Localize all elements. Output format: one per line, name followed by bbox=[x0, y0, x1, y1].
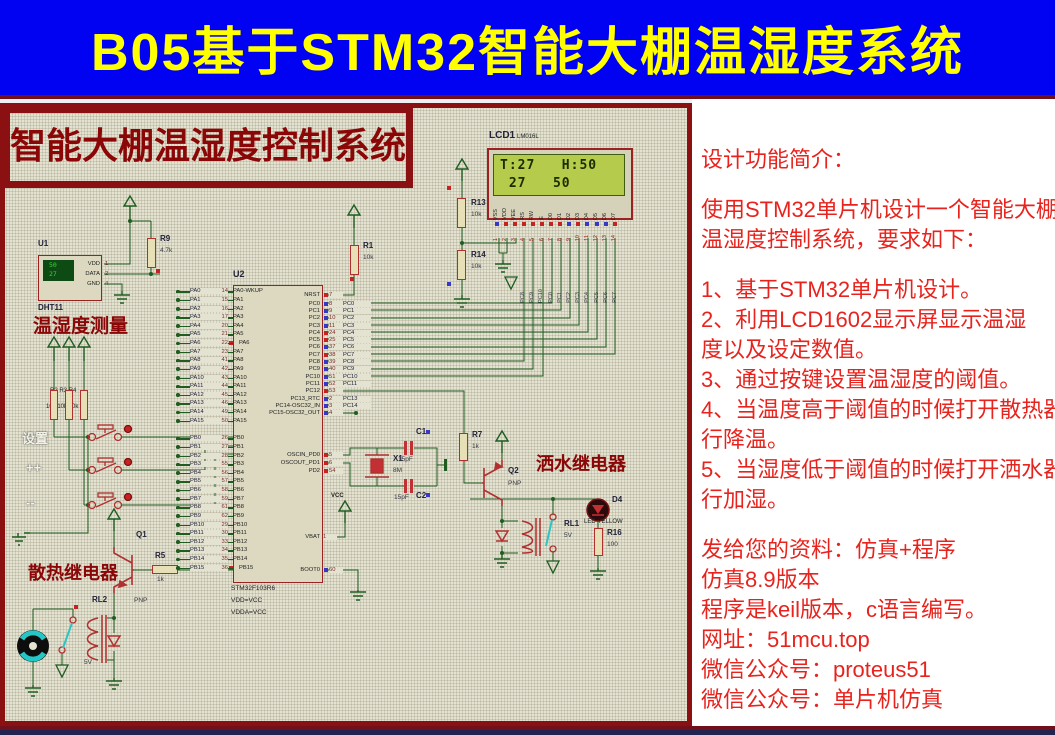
wire-spray-cluster bbox=[326, 391, 598, 568]
r7-ref: R7 bbox=[472, 430, 482, 439]
pin-row: PB1435PB14 bbox=[176, 555, 296, 564]
pin-row: PB127PB1 bbox=[176, 443, 296, 452]
flyback-diode-rl1[interactable] bbox=[496, 531, 508, 541]
pin-row: PB1334PB13 bbox=[176, 546, 296, 555]
q1-ref: Q1 bbox=[136, 530, 147, 539]
resistor-r1[interactable] bbox=[350, 245, 359, 275]
lcd-ref: LCD1 bbox=[489, 130, 515, 141]
u2-ref: U2 bbox=[233, 269, 245, 279]
pin-row: PB962PB9 bbox=[176, 512, 296, 521]
banner: B05基于STM32智能大棚温湿度系统 bbox=[0, 0, 1055, 95]
info-line: 微信公众号：单片机仿真 bbox=[701, 685, 1051, 715]
relay-switch-rl1[interactable] bbox=[546, 514, 556, 552]
q1-type: PNP bbox=[134, 597, 147, 604]
mcu-nrst-pin: NRST7 bbox=[240, 291, 372, 299]
r13-val: 10k bbox=[471, 211, 481, 218]
r1-val: 10k bbox=[363, 254, 373, 261]
schematic-title: 智能大棚温湿度控制系统 bbox=[10, 113, 406, 179]
r9-ref: R9 bbox=[160, 234, 170, 243]
d4-part: LED-YELLOW bbox=[584, 519, 623, 525]
section-measure: 温湿度测量 bbox=[33, 311, 128, 338]
info-line: 仿真8.9版本 bbox=[701, 565, 1051, 595]
pin-row: PB557PB5 bbox=[176, 477, 296, 486]
mcu-osc-pins: OSCIN_PD05OSCOUT_PD16PD254 bbox=[240, 451, 372, 475]
pin-row: PB026PB0 bbox=[176, 434, 296, 443]
resistor-r3[interactable] bbox=[65, 390, 73, 420]
r7-val: 1k bbox=[472, 443, 479, 450]
pin-row: OSCOUT_PD16 bbox=[240, 459, 372, 467]
led-yellow-icon[interactable] bbox=[587, 499, 609, 521]
u2-note-1: VDD=VCC bbox=[231, 597, 262, 604]
u2-note-2: VDDA=VCC bbox=[231, 609, 267, 616]
pin-row: OSCIN_PD05 bbox=[240, 451, 372, 459]
minus-button[interactable] bbox=[89, 493, 132, 509]
info-line: 度以及设定数值。 bbox=[701, 335, 1051, 365]
relay-switch-rl2[interactable] bbox=[59, 617, 76, 653]
section-heat-relay: 散热继电器 bbox=[28, 559, 118, 585]
dht11-pin-numbers: 124 bbox=[105, 259, 117, 289]
schematic-canvas: 智能大棚温湿度控制系统 U1 5027 VDDDATAGND 124 DHT11… bbox=[0, 103, 692, 726]
lcd-part: LM016L bbox=[517, 134, 539, 140]
motor-icon[interactable] bbox=[17, 630, 49, 662]
pin-row: PC1051PC10 bbox=[240, 373, 372, 380]
pin-row: PB658PB6 bbox=[176, 486, 296, 495]
r16-ref: R16 bbox=[607, 528, 622, 537]
r5-val: 1k bbox=[157, 576, 164, 583]
q2-ref: Q2 bbox=[508, 466, 519, 475]
pin-row: PC08PC0 bbox=[240, 300, 372, 307]
pin-row: PA1550PA15 bbox=[176, 416, 296, 425]
c1-val: 15pF bbox=[398, 456, 413, 463]
plus-button[interactable] bbox=[89, 458, 132, 474]
info-line: 发给您的资料：仿真+程序 bbox=[701, 535, 1051, 565]
info-line bbox=[701, 175, 1051, 195]
c2-val: 15pF bbox=[394, 494, 409, 501]
info-line: 2、利用LCD1602显示屏显示温湿 bbox=[701, 305, 1051, 335]
pin-row: PC15-OSC32_OUT4 bbox=[240, 409, 372, 416]
rl1-val: 5V bbox=[564, 532, 572, 539]
flyback-diode-rl2[interactable] bbox=[108, 636, 120, 646]
pin-row: PC1253 bbox=[240, 388, 372, 395]
x1-val: 8M bbox=[393, 467, 402, 474]
info-line: 行加湿。 bbox=[701, 485, 1051, 515]
rl2-ref: RL2 bbox=[92, 595, 107, 604]
pin-row: PC738PC7 bbox=[240, 351, 372, 358]
info-line bbox=[701, 515, 1051, 535]
vcc-label: VCC bbox=[331, 493, 344, 499]
lcd-pin-names: VSSVDDVEERSRWED0D1D2D3D4D5D6D7 bbox=[492, 193, 620, 220]
c1-ref: C1 bbox=[416, 427, 426, 436]
resistor-r14[interactable] bbox=[457, 250, 466, 280]
set-button[interactable] bbox=[89, 425, 132, 441]
info-line: 1、基于STM32单片机设计。 bbox=[701, 275, 1051, 305]
key-set-label: 设置 bbox=[22, 428, 48, 447]
pin-row: PB861PB8 bbox=[176, 503, 296, 512]
schematic-title-box: 智能大棚温湿度控制系统 bbox=[3, 106, 413, 188]
dht11-pin-names: VDDDATAGND bbox=[62, 259, 100, 289]
lcd-ctrl-nets: PC8PC9PC10 bbox=[519, 279, 547, 303]
r13-ref: R13 bbox=[471, 198, 486, 207]
info-line: 5、当湿度低于阈值的时候打开洒水器进 bbox=[701, 455, 1051, 485]
r1-ref: R1 bbox=[363, 241, 373, 250]
mcu-boot0-pin: BOOT060 bbox=[240, 566, 372, 574]
info-line: 网址：51mcu.top bbox=[701, 625, 1051, 655]
info-line: 温湿度控制系统，要求如下： bbox=[701, 225, 1051, 255]
relay-coil-rl1[interactable] bbox=[522, 518, 540, 556]
pin-row: PC14-OSC32_IN3PC14 bbox=[240, 402, 372, 409]
pin-row: PB1029PB10 bbox=[176, 520, 296, 529]
screenshot-root: B05基于STM32智能大棚温湿度系统 bbox=[0, 0, 1055, 735]
info-line: 3、通过按键设置温湿度的阈值。 bbox=[701, 365, 1051, 395]
r9-val: 4.7k bbox=[160, 247, 172, 254]
resistor-r16[interactable] bbox=[594, 528, 603, 556]
pin-row: PC424PC4 bbox=[240, 329, 372, 336]
relay-coil-rl2[interactable] bbox=[88, 615, 107, 663]
info-line: 微信公众号：proteus51 bbox=[701, 655, 1051, 685]
r16-val: 100 bbox=[607, 541, 618, 548]
mcu-pc-pins: PC08PC0PC19PC1PC210PC2PC311PC3PC424PC4PC… bbox=[240, 300, 372, 417]
rl1-ref: RL1 bbox=[564, 519, 579, 528]
banner-title: B05基于STM32智能大棚温湿度系统 bbox=[91, 10, 964, 85]
info-line: 设计功能简介： bbox=[701, 145, 1051, 175]
lcd-pin-numbers: 1234567891011121314 bbox=[492, 228, 620, 241]
capacitor-icon[interactable] bbox=[404, 441, 447, 493]
resistor-r7[interactable] bbox=[459, 433, 468, 461]
info-line: 使用STM32单片机设计一个智能大棚 bbox=[701, 195, 1051, 225]
info-line: 行降温。 bbox=[701, 425, 1051, 455]
info-panel: 设计功能简介：使用STM32单片机设计一个智能大棚温湿度控制系统，要求如下：1、… bbox=[692, 99, 1055, 726]
r14-ref: R14 bbox=[471, 250, 486, 259]
pin-row: PC311PC3 bbox=[240, 322, 372, 329]
resistor-r4[interactable] bbox=[80, 390, 88, 420]
pin-row: PC13_RTC2PC13 bbox=[240, 395, 372, 402]
pin-row: PC637PC6 bbox=[240, 344, 372, 351]
resistor-r2[interactable] bbox=[50, 390, 58, 420]
pin-row: PC839PC8 bbox=[240, 358, 372, 365]
section-spray-relay: 洒水继电器 bbox=[536, 450, 626, 476]
pin-row: PC1152PC11 bbox=[240, 380, 372, 387]
pin-row: PC940PC9 bbox=[240, 366, 372, 373]
mcu-vbat-pin: VBAT1 bbox=[240, 533, 372, 541]
pin-row: PC19PC1 bbox=[240, 307, 372, 314]
resistor-r9[interactable] bbox=[147, 238, 156, 268]
r5-ref: R5 bbox=[155, 551, 165, 560]
resistor-r13[interactable] bbox=[457, 198, 466, 228]
lcd-screen: T:27 H:50 27 50 bbox=[493, 154, 625, 196]
pin-row: PD254 bbox=[240, 467, 372, 475]
pin-row: PC210PC2 bbox=[240, 315, 372, 322]
q2-type: PNP bbox=[508, 480, 521, 487]
info-line: 4、当温度高于阈值的时候打开散热器进 bbox=[701, 395, 1051, 425]
key-plus-label: ++ bbox=[26, 460, 41, 475]
c2-ref: C2 bbox=[416, 491, 426, 500]
pin-row: PC525PC5 bbox=[240, 336, 372, 343]
key-minus-label: -- bbox=[26, 495, 35, 510]
lcd-pin-states bbox=[492, 222, 620, 226]
pin-row: PB759PB7 bbox=[176, 494, 296, 503]
info-line bbox=[701, 255, 1051, 275]
rl2-val: 5V bbox=[84, 659, 92, 666]
info-line: 程序是keil版本，c语言编写。 bbox=[701, 595, 1051, 625]
d4-ref: D4 bbox=[612, 495, 622, 504]
lcd-data-nets: PC0PC1PC2PC3PC4PC5PC6PC7 bbox=[547, 279, 620, 303]
r14-val: 10k bbox=[471, 263, 481, 270]
u2-part: STM32F103R6 bbox=[231, 585, 275, 592]
resistor-r5[interactable] bbox=[152, 565, 178, 574]
u1-ref: U1 bbox=[38, 239, 48, 248]
bottom-navy-bar bbox=[0, 730, 1055, 735]
